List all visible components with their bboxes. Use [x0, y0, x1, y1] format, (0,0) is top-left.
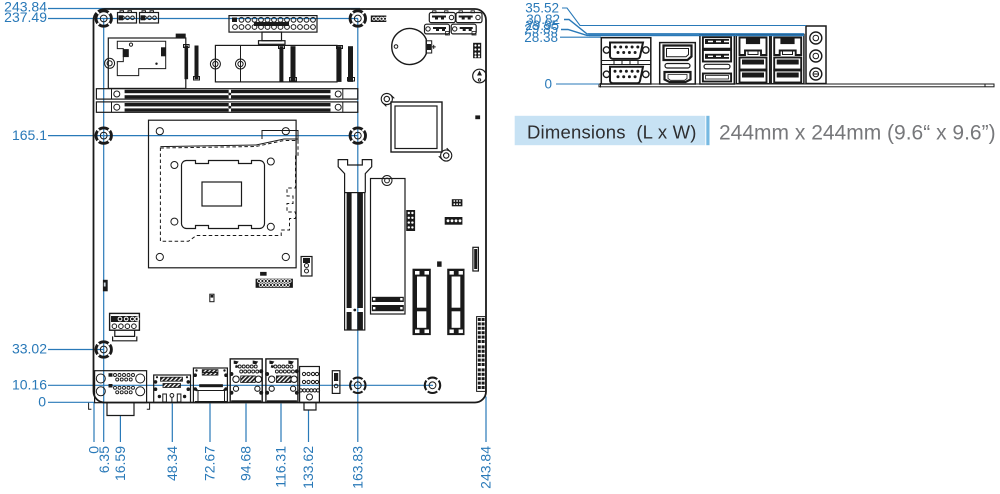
svg-text:165.1: 165.1 — [12, 127, 47, 143]
svg-text:16.59: 16.59 — [112, 446, 128, 481]
svg-text:48.34: 48.34 — [164, 446, 180, 481]
svg-text:0: 0 — [544, 76, 552, 91]
svg-text:244mm x 244mm (9.6“ x 9.6”): 244mm x 244mm (9.6“ x 9.6”) — [719, 122, 996, 145]
svg-text:237.49: 237.49 — [4, 9, 47, 25]
svg-text:72.67: 72.67 — [202, 446, 218, 481]
svg-text:10.16: 10.16 — [12, 377, 47, 393]
svg-text:243.84: 243.84 — [477, 446, 493, 489]
svg-text:33.02: 33.02 — [12, 341, 47, 357]
svg-text:163.83: 163.83 — [349, 446, 365, 489]
svg-text:94.68: 94.68 — [238, 446, 254, 481]
svg-text:116.31: 116.31 — [273, 446, 289, 488]
svg-text:0: 0 — [38, 394, 46, 410]
svg-text:28.38: 28.38 — [524, 30, 558, 45]
svg-text:Dimensions (L x W): Dimensions (L x W) — [527, 122, 697, 143]
svg-text:6.35: 6.35 — [96, 446, 112, 473]
svg-text:133.62: 133.62 — [300, 446, 316, 489]
